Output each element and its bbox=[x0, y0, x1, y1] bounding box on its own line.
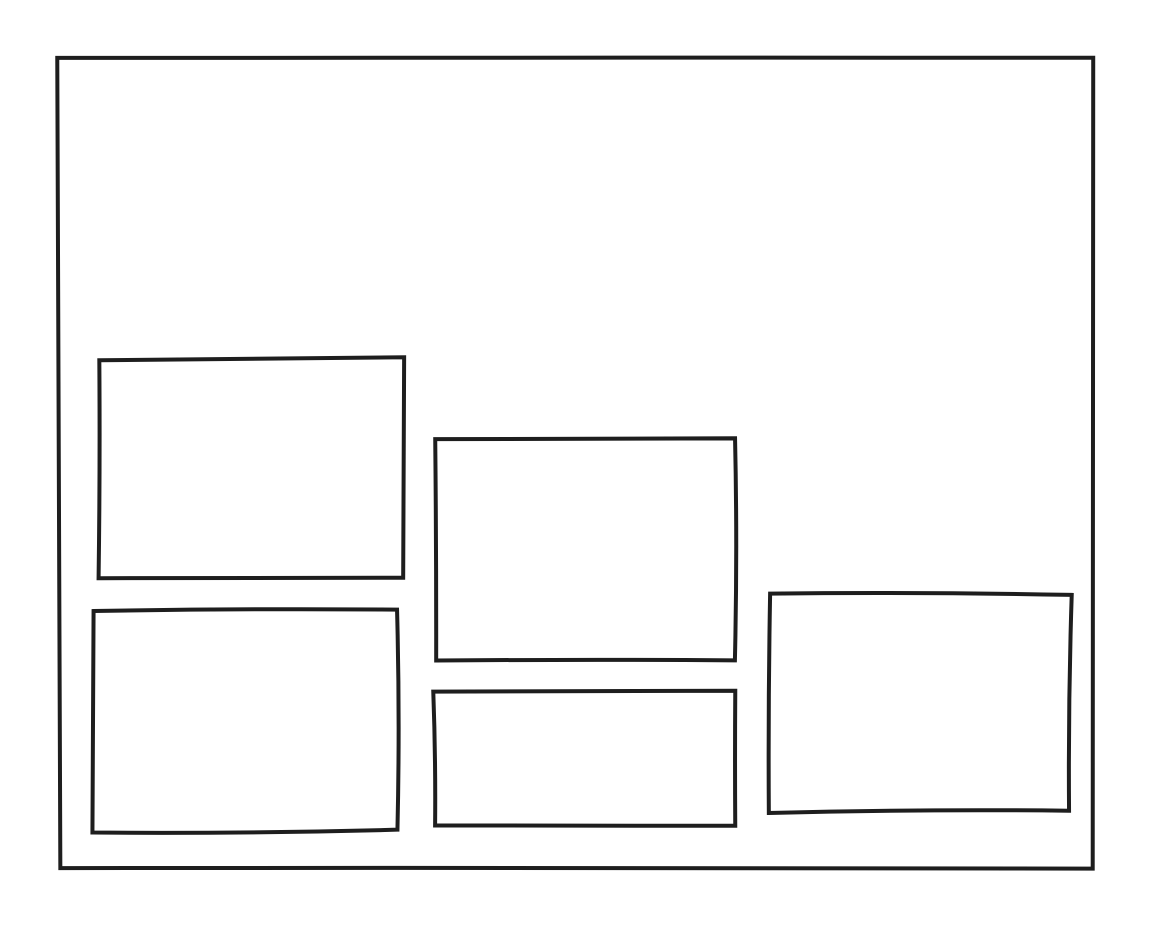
panel-center bbox=[435, 438, 736, 660]
panel-bottom-left bbox=[92, 609, 398, 833]
panel-right bbox=[769, 593, 1072, 813]
sketch-canvas bbox=[0, 0, 1150, 942]
sketch bbox=[0, 0, 1150, 942]
outer-frame bbox=[57, 58, 1093, 869]
panel-top-left bbox=[99, 357, 405, 578]
panel-bottom-center bbox=[433, 691, 735, 826]
